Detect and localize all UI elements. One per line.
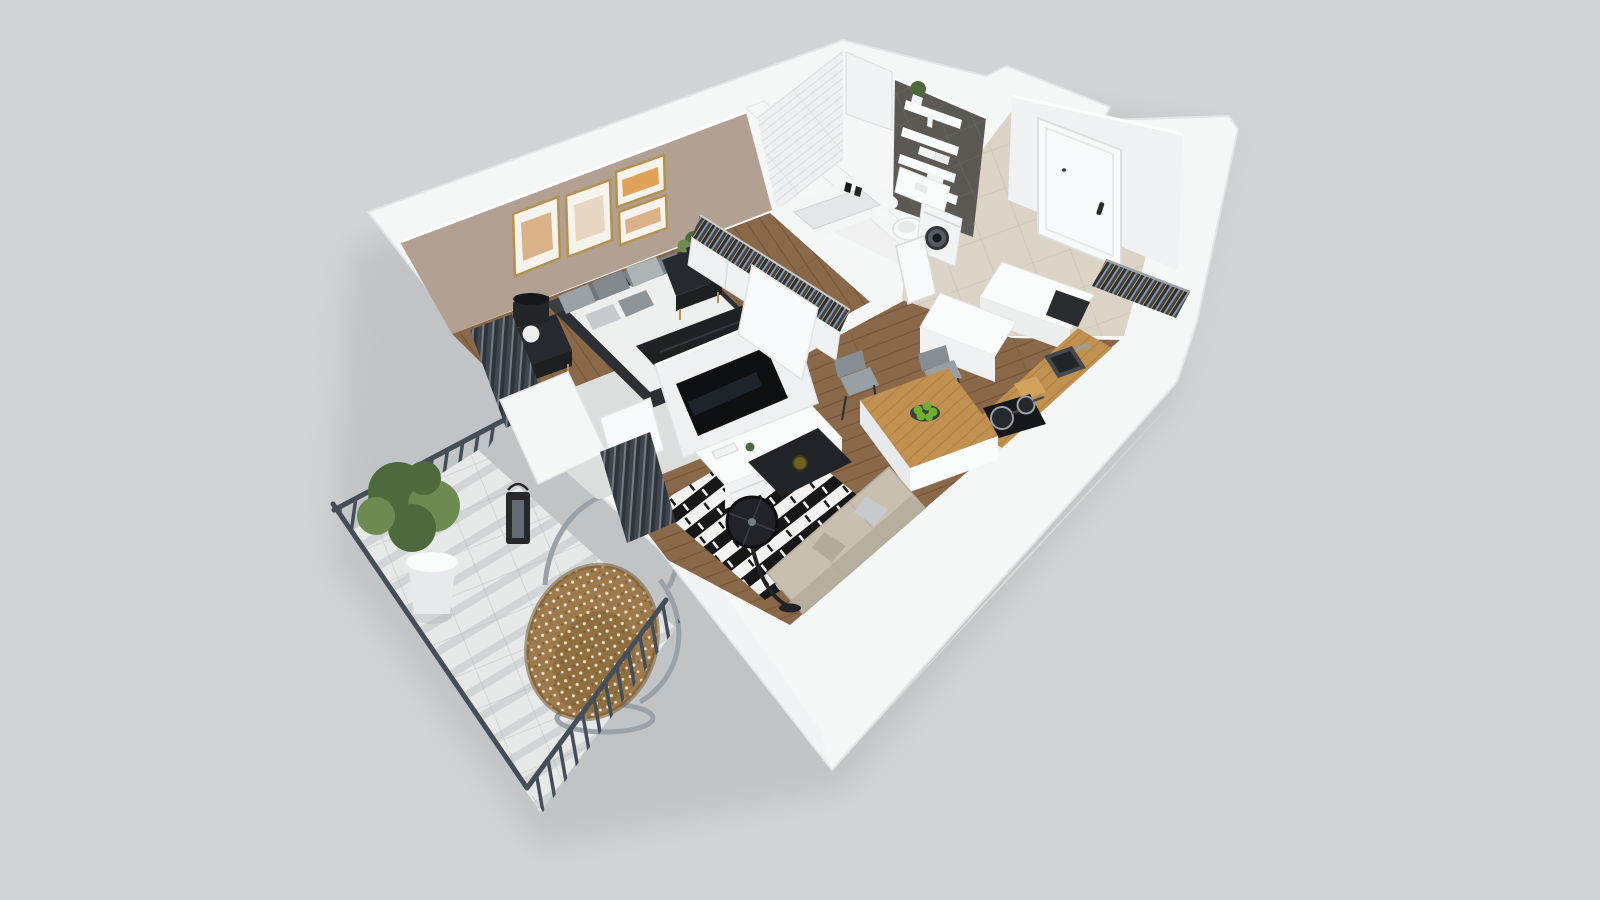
balcony-lantern bbox=[506, 484, 530, 544]
cooktop-pan-1 bbox=[991, 407, 1013, 429]
apple-4 bbox=[917, 412, 926, 421]
plant-foliage-5 bbox=[407, 461, 441, 495]
front-door-peephole bbox=[1062, 168, 1066, 172]
toilet-bowl-inner bbox=[898, 221, 916, 233]
plant-foliage-3 bbox=[388, 504, 436, 552]
apple-5 bbox=[925, 413, 933, 421]
cooktop-pan-2 bbox=[1018, 397, 1035, 414]
plant-pot-rim bbox=[406, 552, 458, 572]
shelf-plant bbox=[910, 81, 926, 97]
floorplan-render bbox=[0, 0, 1600, 900]
shelf-bottle bbox=[927, 114, 933, 128]
table-vase bbox=[793, 456, 807, 470]
floorplan-svg bbox=[0, 0, 1600, 900]
lantern-glass bbox=[512, 500, 524, 538]
washer-drum bbox=[933, 234, 942, 243]
plant-foliage-4 bbox=[357, 497, 395, 535]
cabinet-plant-cup bbox=[746, 443, 755, 452]
lamp-shade-top bbox=[513, 293, 549, 305]
floor-lamp-base bbox=[779, 604, 801, 613]
lamp-hub bbox=[748, 518, 756, 526]
lamp-base-sphere bbox=[523, 326, 540, 343]
